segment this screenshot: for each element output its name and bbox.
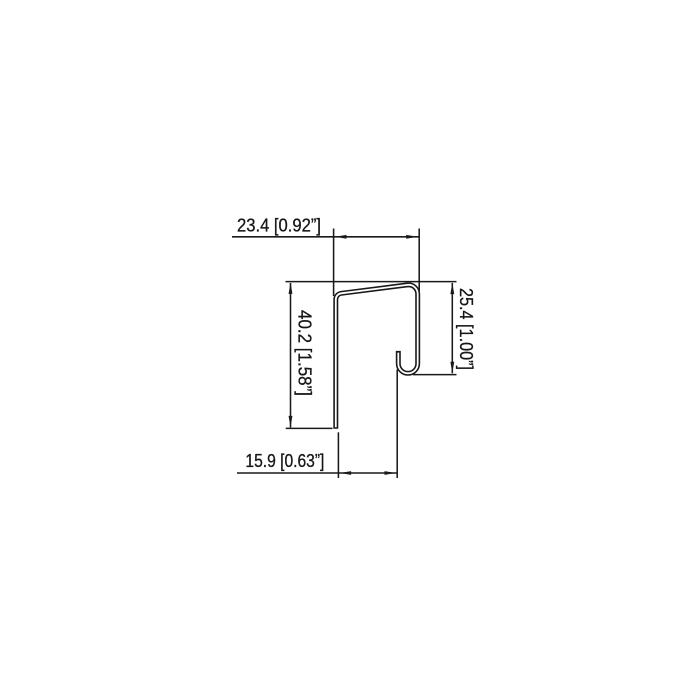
svg-text:40.2 [1.58”]: 40.2 [1.58”] <box>295 310 316 396</box>
svg-text:23.4 [0.92”]: 23.4 [0.92”] <box>237 214 321 235</box>
svg-text:25.4 [1.00”]: 25.4 [1.00”] <box>456 288 477 370</box>
svg-text:15.9 [0.63”]: 15.9 [0.63”] <box>245 450 324 471</box>
